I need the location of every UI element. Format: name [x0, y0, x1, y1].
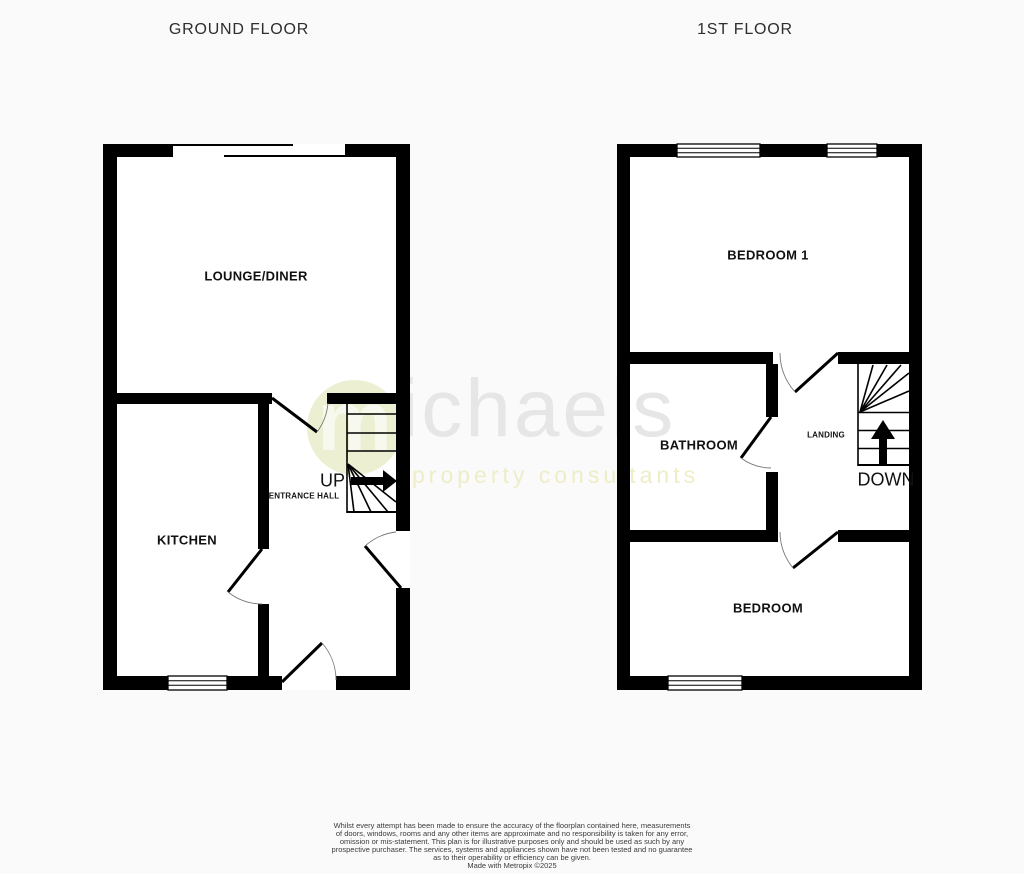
room-label-bathroom: BATHROOM	[660, 438, 738, 453]
watermark-brand-name: ichaels	[400, 360, 676, 458]
room-label-bedroom2: BEDROOM	[733, 601, 803, 616]
room-label-bedroom1: BEDROOM 1	[727, 248, 808, 263]
watermark-logo-letter: m	[317, 379, 392, 463]
ground-floor-title: GROUND FLOOR	[169, 21, 309, 39]
watermark-tagline: property consultants	[412, 462, 699, 489]
first-floor-title: 1ST FLOOR	[697, 21, 793, 39]
watermark-logo-circle: m	[307, 380, 402, 475]
floorplan-page: m ichaels property consultants	[0, 0, 1024, 874]
disclaimer-credit: Made with Metropix ©2025	[152, 862, 872, 870]
room-label-lounge-diner: LOUNGE/DINER	[204, 269, 307, 284]
disclaimer-text: Whilst every attempt has been made to en…	[152, 822, 872, 869]
stairs-down-label: DOWN	[858, 470, 915, 491]
stairs-up-label: UP	[320, 471, 345, 492]
room-label-entrance-hall: ENTRANCE HALL	[269, 492, 340, 501]
room-label-landing: LANDING	[807, 431, 845, 440]
room-label-kitchen: KITCHEN	[157, 533, 217, 548]
